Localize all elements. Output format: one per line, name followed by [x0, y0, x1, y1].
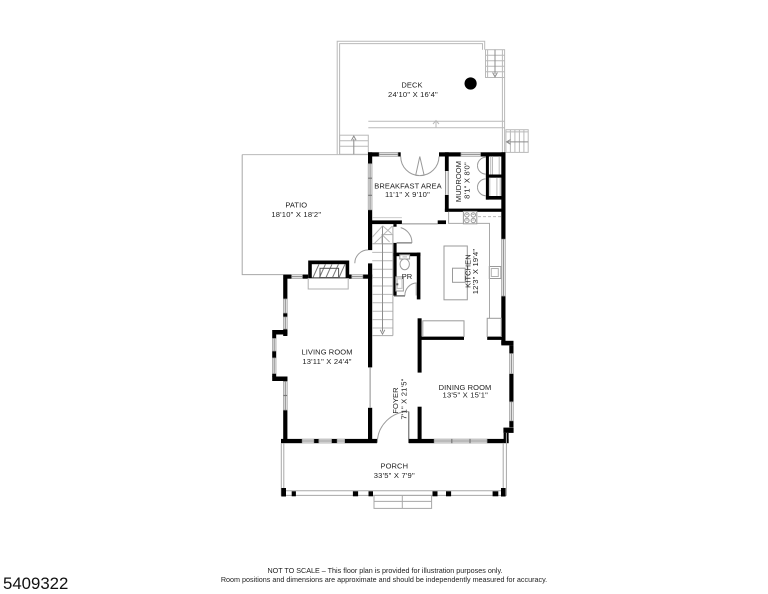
- svg-text:NOT TO SCALE – This floor plan: NOT TO SCALE – This floor plan is provid…: [267, 566, 502, 575]
- svg-text:PR: PR: [402, 272, 413, 281]
- svg-text:13'5" X 15'1": 13'5" X 15'1": [443, 391, 489, 400]
- svg-text:12'3" X 19'4": 12'3" X 19'4": [471, 249, 480, 295]
- svg-text:8'1" X 8'0": 8'1" X 8'0": [463, 162, 472, 199]
- svg-text:7'1" X 21'5": 7'1" X 21'5": [400, 378, 409, 419]
- svg-text:33'5" X 7'9": 33'5" X 7'9": [374, 471, 415, 480]
- svg-text:PATIO: PATIO: [285, 201, 307, 210]
- svg-text:BREAKFAST AREA: BREAKFAST AREA: [374, 181, 442, 190]
- svg-text:18'10" X 18'2": 18'10" X 18'2": [271, 210, 321, 219]
- svg-text:11'1" X 9'10": 11'1" X 9'10": [385, 190, 430, 199]
- svg-text:24'10" X 16'4": 24'10" X 16'4": [388, 90, 438, 99]
- svg-text:PORCH: PORCH: [381, 461, 409, 470]
- svg-text:FOYER: FOYER: [391, 387, 400, 414]
- svg-text:5409322: 5409322: [3, 574, 68, 593]
- svg-text:MUDROOM: MUDROOM: [454, 161, 463, 202]
- svg-text:DECK: DECK: [401, 81, 422, 90]
- svg-text:LIVING ROOM: LIVING ROOM: [301, 347, 352, 356]
- svg-text:Room positions and dimensions: Room positions and dimensions are approx…: [221, 575, 547, 584]
- svg-text:13'11" X 24'4": 13'11" X 24'4": [302, 357, 351, 366]
